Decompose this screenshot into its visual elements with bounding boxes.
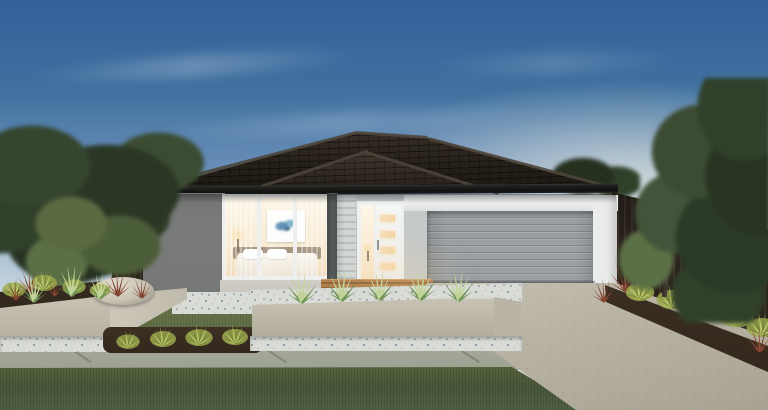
foreground-lawn [0,367,590,410]
left-garden-tree [22,186,162,294]
shrub-mulch-bed [103,327,263,353]
house-render-scene [0,0,768,410]
glass-reflection [225,197,327,276]
feature-boulder [92,277,154,305]
right-boundary-tree [598,78,768,323]
window-glass [225,197,327,276]
pebble-strip [0,336,112,352]
center-planter-side [494,297,521,338]
door-glass-slot [380,215,395,222]
cloud-streak [30,44,361,89]
bedroom-window [222,194,330,280]
pebble-strip [250,336,522,351]
cloud-streak [430,48,681,79]
